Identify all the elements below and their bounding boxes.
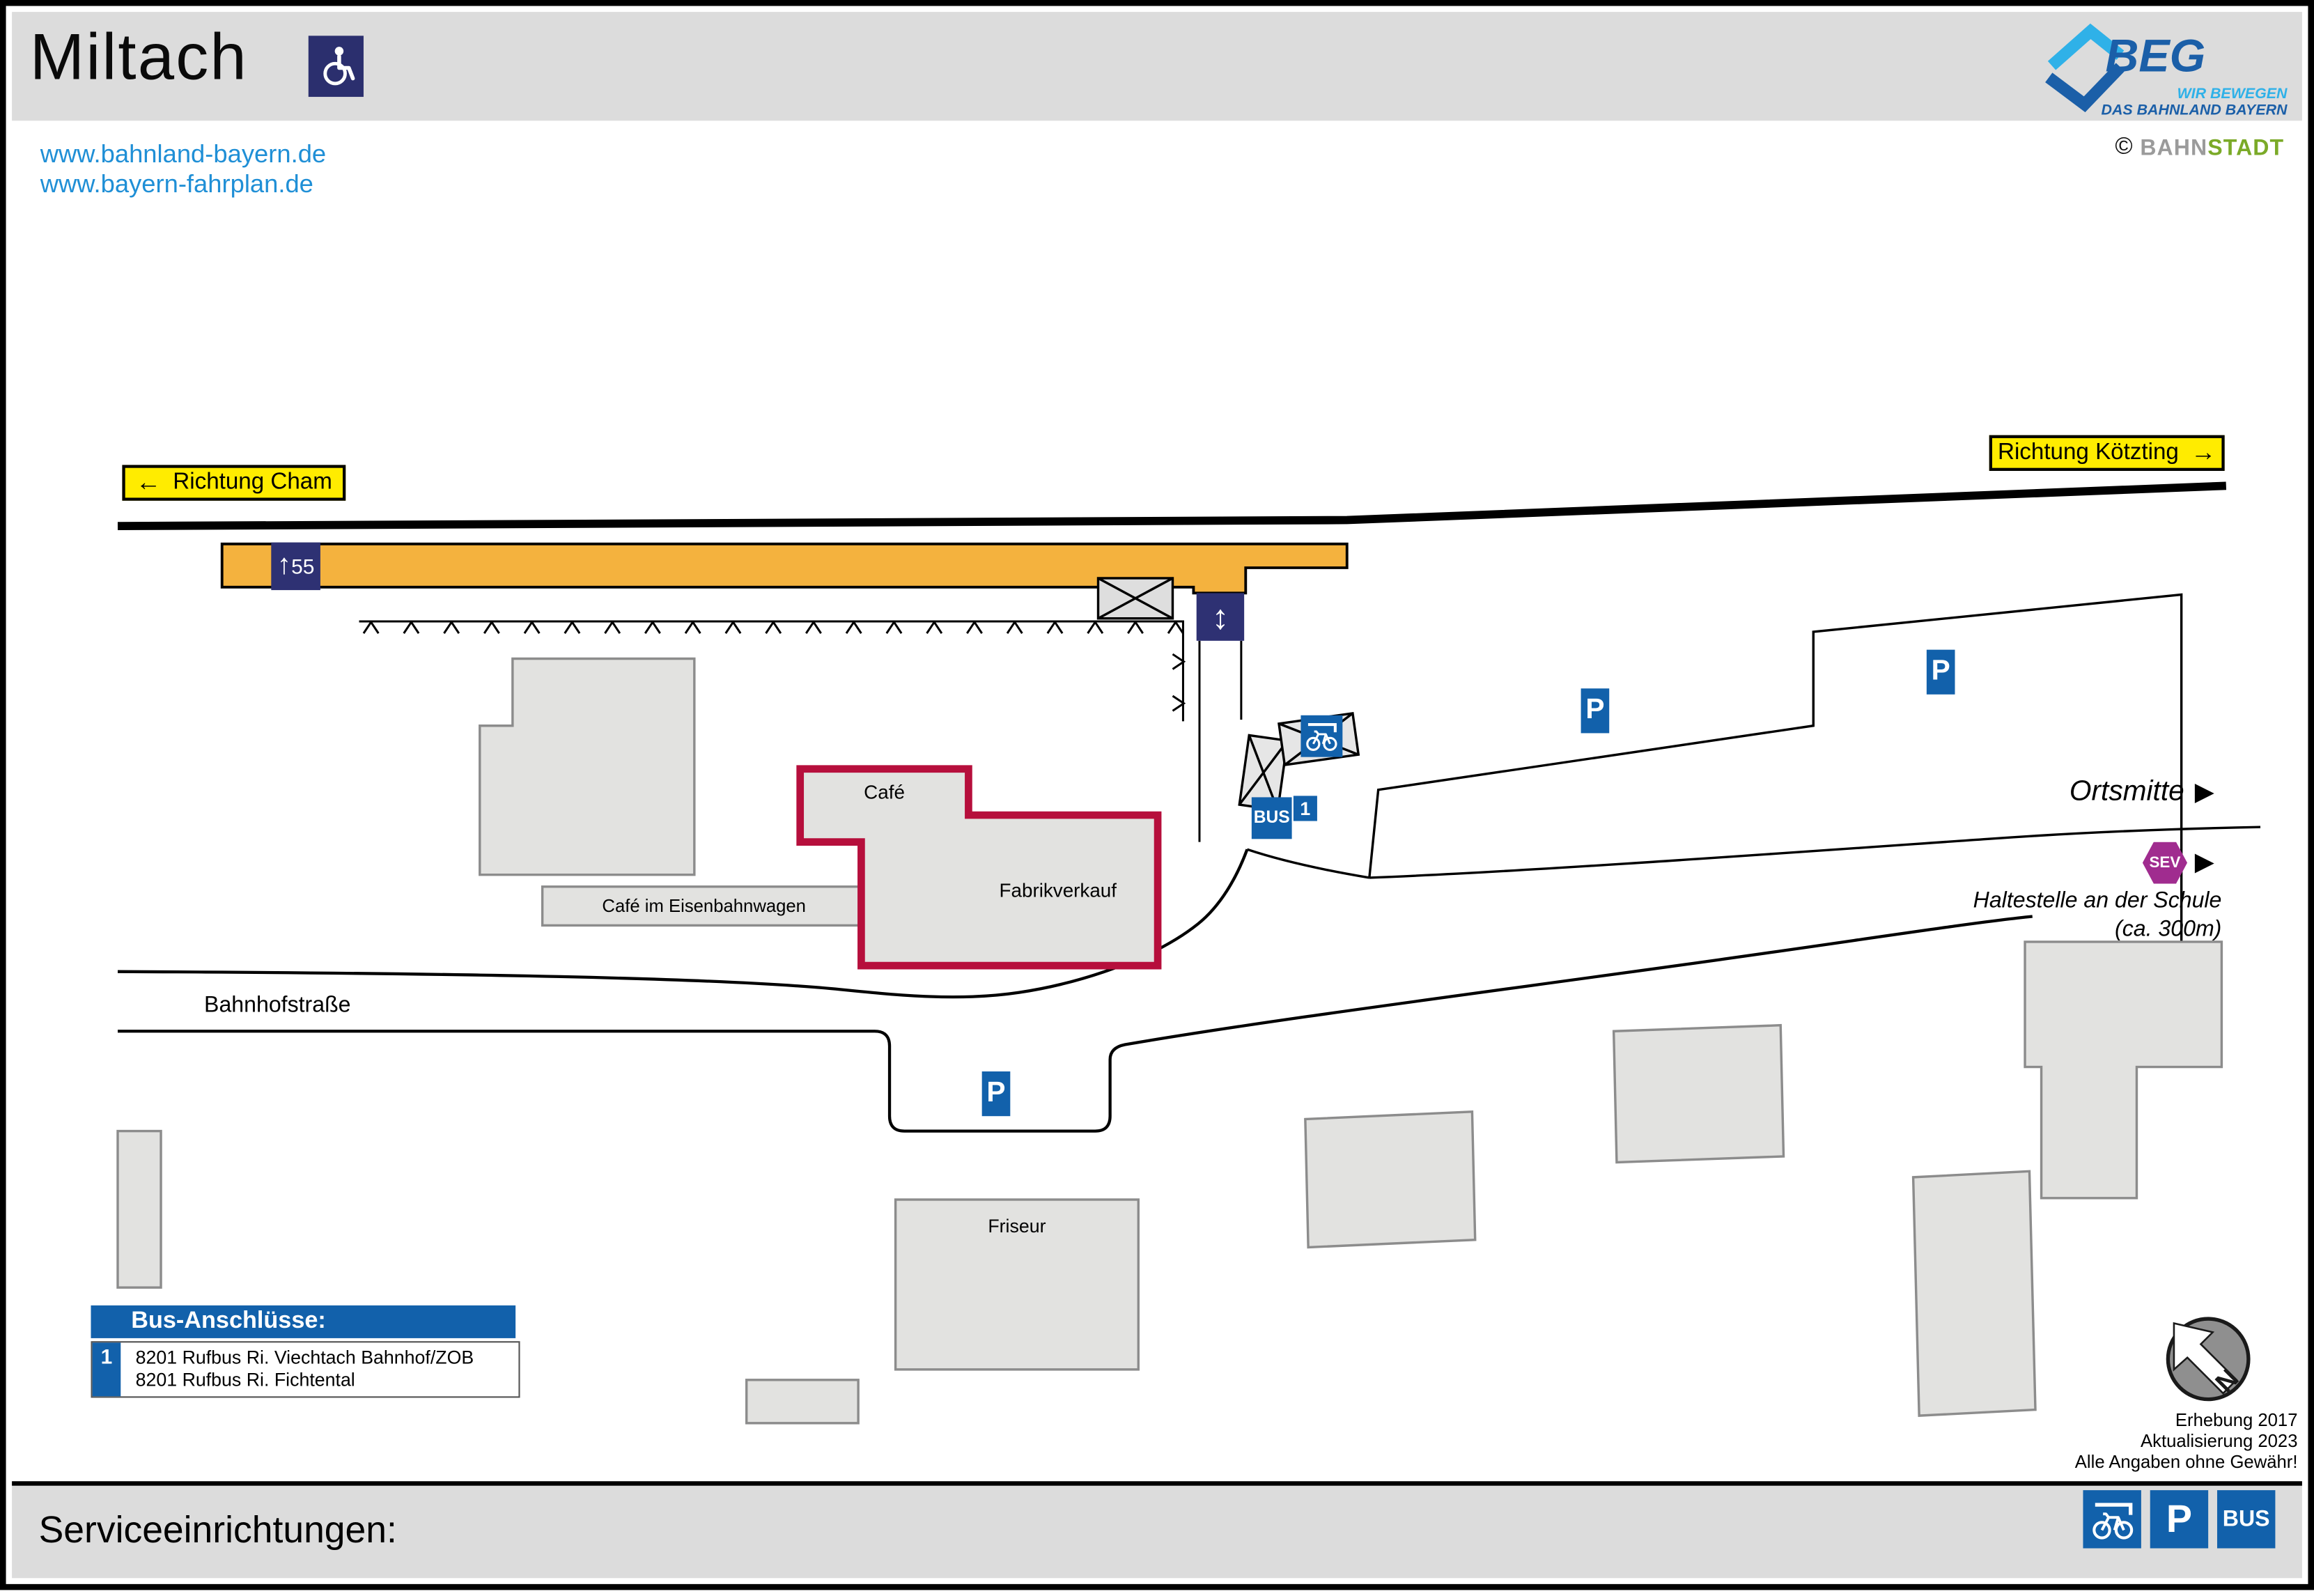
ortsmitte-label: Ortsmitte — [2070, 776, 2184, 809]
sev-pointer: SEV ▶ — [1854, 842, 2214, 884]
survey-note-1: Erhebung 2017 — [1973, 1410, 2297, 1431]
up-down-arrow-icon: ↕ — [1212, 597, 1229, 637]
page-frame: Miltach BEG WIR BEWEGEN DAS BAHNLAND BAY… — [0, 0, 2314, 1590]
factory-outlet-label: Fabrikverkauf — [968, 879, 1147, 901]
direction-sign-cham-label: Richtung Cham — [173, 470, 332, 497]
street-label: Bahnhofstraße — [204, 993, 351, 1018]
building-northwest — [480, 658, 694, 874]
service-bike-parking-icon — [2083, 1490, 2141, 1548]
building-east-2 — [1614, 1025, 1784, 1163]
bus-stop-number-badge: 1 — [1294, 796, 1317, 821]
bike-roof-icon — [2087, 1494, 2138, 1544]
bike-roof-icon — [1303, 717, 1342, 756]
pointer-triangle-icon: ▶ — [2195, 848, 2214, 878]
sev-badge: SEV — [2143, 842, 2187, 884]
service-bar-icons: P BUS — [2083, 1490, 2275, 1548]
direction-sign-cham: ← Richtung Cham — [122, 465, 345, 500]
service-parking-icon: P — [2150, 1490, 2208, 1548]
legend-title: Bus-Anschlüsse: — [91, 1306, 515, 1338]
legend-row: 1 8201 Rufbus Ri. Viechtach Bahnhof/ZOB … — [91, 1341, 520, 1397]
survey-notes: Erhebung 2017 Aktualisierung 2023 Alle A… — [1973, 1410, 2297, 1473]
up-arrow-icon: ↑ — [277, 550, 291, 582]
building-small-south — [747, 1380, 858, 1423]
building-northeast-L — [2025, 942, 2221, 1198]
bus-stop-curb — [1247, 849, 1369, 878]
building-east-1 — [1305, 1112, 1475, 1248]
service-bar: Serviceeinrichtungen: P BUS — [12, 1481, 2302, 1578]
parking-icon-forecourt: P — [1581, 688, 1610, 733]
legend-line-2: 8201 Rufbus Ri. Fichtental — [136, 1370, 474, 1392]
hairdresser-label: Friseur — [896, 1216, 1139, 1237]
pointer-triangle-icon: ▶ — [2195, 778, 2214, 808]
station-map-page: Miltach BEG WIR BEWEGEN DAS BAHNLAND BAY… — [0, 0, 2314, 1590]
bus-connections-legend: Bus-Anschlüsse: 1 8201 Rufbus Ri. Viecht… — [91, 1306, 520, 1398]
direction-sign-koetzting: Richtung Kötzting → — [1989, 435, 2225, 471]
arrow-right-icon: → — [2191, 438, 2216, 468]
fence-marks — [364, 622, 1184, 711]
parking-icon-east: P — [1927, 650, 1955, 695]
survey-note-2: Aktualisierung 2023 — [1973, 1431, 2297, 1452]
fence-line — [359, 621, 1183, 721]
ortsmitte-pointer: Ortsmitte ▶ — [1854, 776, 2214, 809]
step-free-access-sign: ↕ — [1197, 593, 1244, 640]
arrow-left-icon: ← — [136, 468, 161, 498]
legend-stop-number-badge: 1 — [93, 1342, 121, 1396]
platform-shape — [222, 544, 1347, 594]
cafe-label: Café — [800, 781, 969, 803]
platform-access-path — [1199, 641, 1241, 842]
sev-stop-note-line2: (ca. 300m) — [1794, 917, 2221, 942]
building-southeast-tall — [1913, 1171, 2035, 1416]
direction-sign-koetzting-label: Richtung Kötzting — [1998, 440, 2179, 467]
platform-height-sign: ↑55 — [271, 543, 320, 590]
legend-entry-lines: 8201 Rufbus Ri. Viechtach Bahnhof/ZOB 82… — [121, 1342, 474, 1396]
railway-line — [118, 486, 2226, 526]
survey-note-3: Alle Angaben ohne Gewähr! — [1973, 1451, 2297, 1472]
parking-icon-street: P — [982, 1071, 1011, 1116]
platform-height-value: 55 — [291, 555, 314, 578]
legend-line-1: 8201 Rufbus Ri. Viechtach Bahnhof/ZOB — [136, 1347, 474, 1370]
platform-shelter — [1098, 578, 1173, 619]
service-bus-icon: BUS — [2217, 1490, 2275, 1548]
building-small-west — [118, 1131, 161, 1288]
sev-stop-note-line1: Haltestelle an der Schule — [1794, 888, 2221, 913]
railcar-cafe-label: Café im Eisenbahnwagen — [543, 896, 866, 917]
covered-bike-parking-sign — [1300, 715, 1342, 757]
service-bar-label: Serviceeinrichtungen: — [39, 1510, 397, 1553]
bus-stop-icon: BUS — [1252, 797, 1292, 839]
compass-icon: N — [2168, 1319, 2249, 1400]
